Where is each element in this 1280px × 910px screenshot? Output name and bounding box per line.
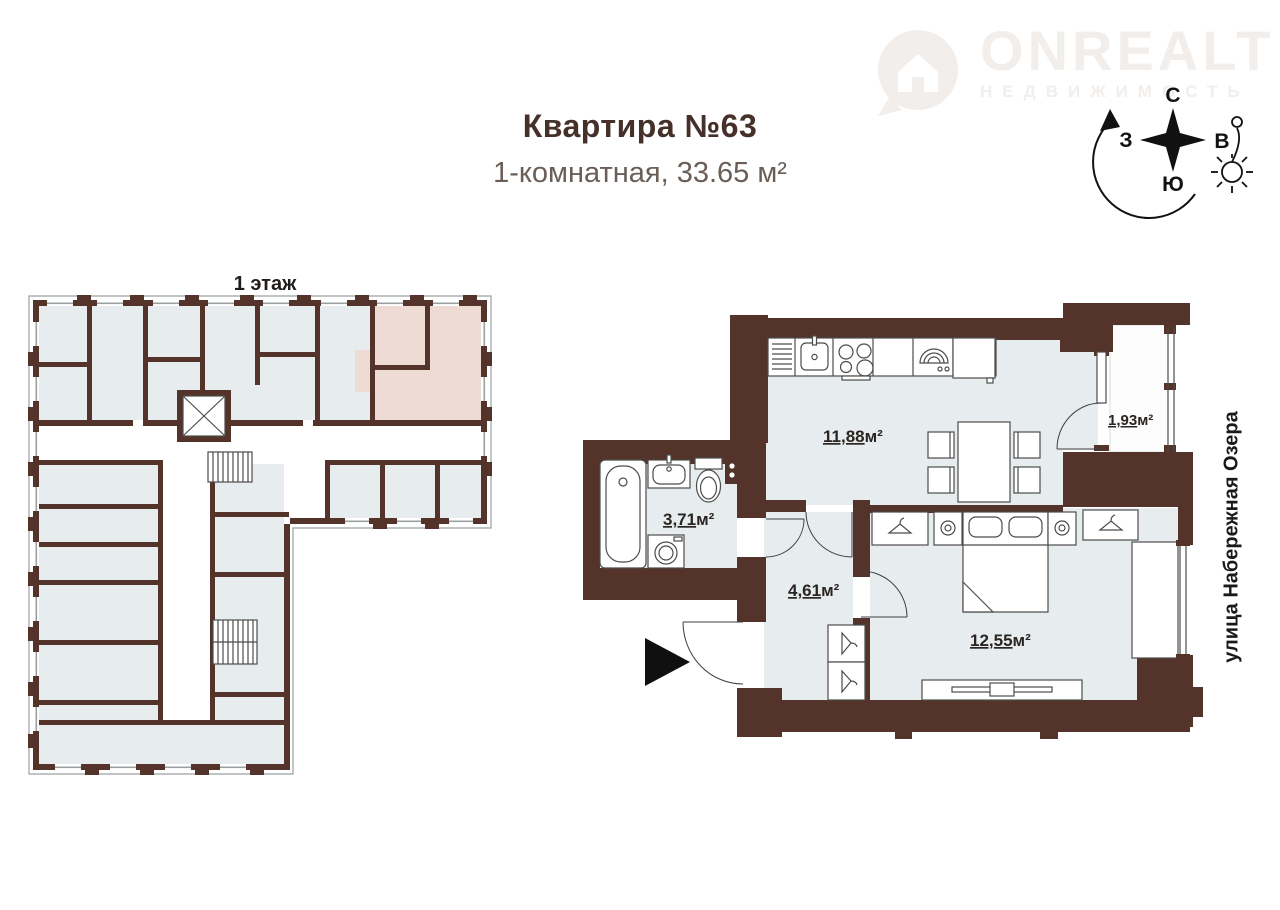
overview-floor-plan: 1 этаж (25, 272, 495, 802)
elevator-shaft (177, 390, 231, 442)
bedroom-area-label: 12,55м² (970, 631, 1031, 650)
bathroom-area-label: 3,71м² (663, 510, 715, 529)
entrance-door (683, 622, 743, 684)
brand-name: ONREALT (980, 22, 1275, 80)
glazed-partition (1097, 352, 1106, 403)
compass-west-label: З (1119, 129, 1132, 152)
loggia-area-label: 1,93м² (1108, 412, 1153, 429)
chair (1014, 467, 1040, 493)
nightstand (934, 512, 962, 545)
floorplan-page: ONREALT НЕДВИЖИМОСТЬ Квартира №63 1-комн… (0, 0, 1280, 910)
loggia-area (1110, 325, 1168, 452)
kitchen-counter (768, 336, 996, 383)
compass-east-label: В (1214, 130, 1229, 153)
compass-south-label: Ю (1162, 173, 1184, 196)
overview-floor-label: 1 этаж (234, 273, 297, 295)
chair (1014, 432, 1040, 458)
bathtub (600, 460, 646, 568)
pillow (1009, 517, 1042, 537)
double-bed (963, 512, 1048, 612)
brand-pin-icon (868, 22, 964, 122)
nightstand (1048, 512, 1076, 545)
apartment-floor-plan: 11,88м² 1,93м² 3,71м² 4,61м² 12,55м² (580, 295, 1210, 745)
vent-shaft (725, 458, 739, 484)
wardrobe (1083, 510, 1138, 540)
wardrobe (872, 512, 928, 545)
bedroom-window (1132, 540, 1190, 660)
bathroom-sink (648, 455, 690, 488)
compass-north-label: С (1165, 84, 1180, 107)
sun-icon (1211, 117, 1253, 193)
hallway-area-label: 4,61м² (788, 581, 840, 600)
washing-machine (648, 535, 684, 568)
dining-table (958, 422, 1010, 502)
compass-star-icon (1140, 108, 1206, 172)
compass-rose: С В Ю З (1085, 78, 1260, 223)
chair (928, 467, 954, 493)
counter-end (953, 338, 995, 383)
hallway-closets (828, 625, 865, 700)
stairs (208, 452, 252, 482)
arrowhead-icon (1100, 109, 1120, 131)
pillow (969, 517, 1002, 537)
entrance-arrow-icon (645, 638, 690, 686)
street-label: улица Набережная Озера (1221, 411, 1244, 663)
dresser (922, 680, 1082, 700)
kitchen-area-label: 11,88м² (823, 427, 883, 446)
toilet (695, 458, 722, 502)
stairs (213, 620, 257, 664)
chair (928, 432, 954, 458)
